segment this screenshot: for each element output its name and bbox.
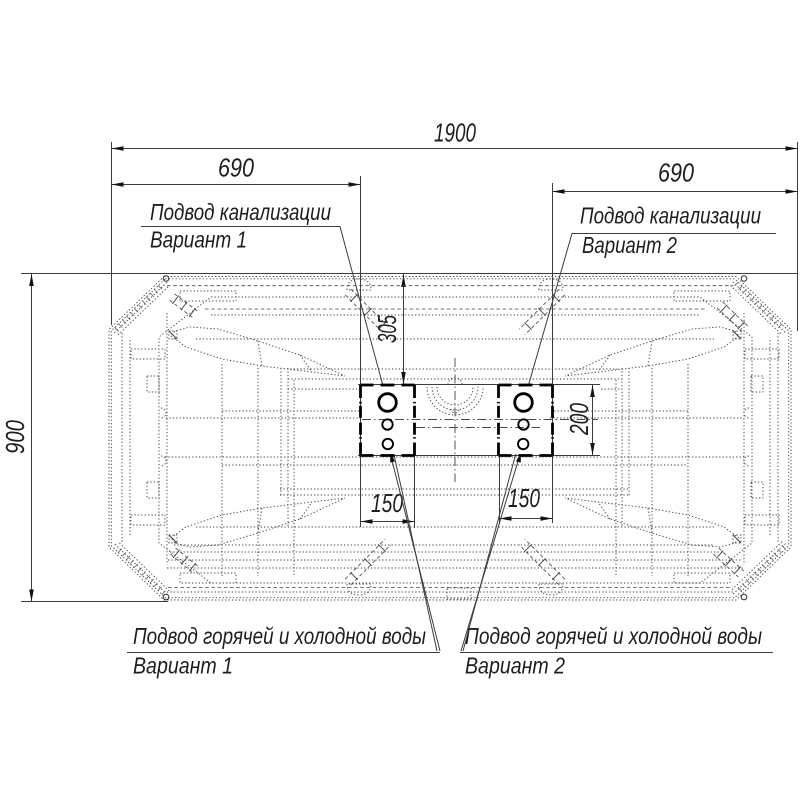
svg-text:Вариант 2: Вариант 2 — [582, 232, 677, 258]
svg-text:690: 690 — [218, 153, 254, 183]
svg-text:150: 150 — [508, 483, 540, 513]
svg-text:Вариант 2: Вариант 2 — [465, 653, 565, 679]
svg-text:Подвод горячей и холодной воды: Подвод горячей и холодной воды — [133, 623, 426, 649]
svg-text:900: 900 — [0, 420, 30, 454]
svg-text:Вариант 1: Вариант 1 — [150, 227, 247, 253]
svg-text:Подвод канализации: Подвод канализации — [150, 199, 331, 225]
svg-text:Подвод горячей и холодной воды: Подвод горячей и холодной воды — [465, 623, 762, 649]
svg-text:Вариант 1: Вариант 1 — [133, 653, 233, 679]
svg-text:Подвод канализации: Подвод канализации — [580, 203, 761, 229]
svg-text:1900: 1900 — [434, 118, 476, 148]
svg-text:690: 690 — [658, 158, 694, 188]
svg-text:150: 150 — [371, 488, 403, 518]
